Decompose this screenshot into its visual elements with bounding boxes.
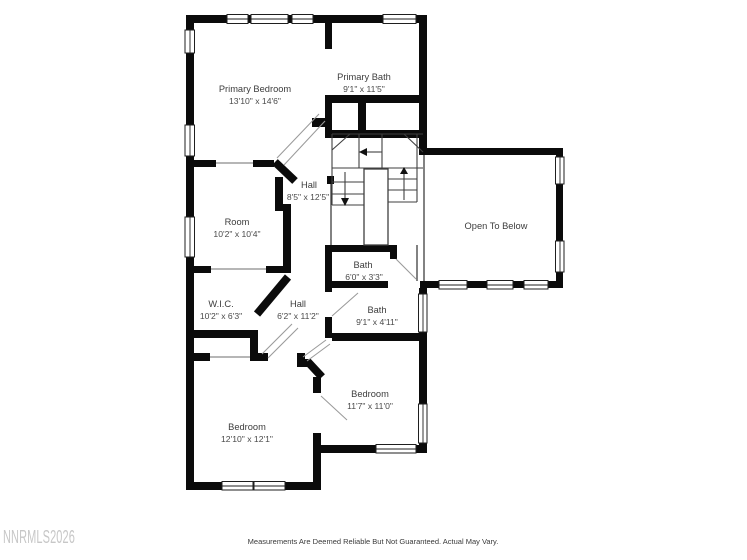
measurement-disclaimer: Measurements Are Deemed Reliable But Not…: [248, 537, 499, 546]
window: [487, 281, 513, 290]
room-label-bath-main: Bath: [367, 305, 386, 315]
room-dims-room: 10'2" x 10'4": [213, 229, 260, 239]
room-label-bedroom-left: Bedroom: [228, 422, 266, 432]
mls-watermark: NNRMLS2026: [3, 527, 75, 547]
floor-plan-page: Primary Bedroom 13'10" x 14'6" Primary B…: [0, 0, 747, 560]
stair-up-arrow-icon: [400, 167, 408, 200]
window: [185, 217, 195, 257]
window: [376, 445, 416, 454]
room-dims-bedroom-right: 11'7" x 11'0": [347, 401, 393, 411]
window: [185, 30, 195, 53]
room-dims-bath-small: 6'0" x 3'3": [345, 272, 383, 282]
room-dims-primary-bath: 9'1" x 11'5": [343, 84, 385, 94]
room-dims-wic: 10'2" x 6'3": [200, 311, 242, 321]
window: [419, 404, 428, 443]
room-dims-hall-upper: 8'5" x 12'5": [287, 192, 329, 202]
stairwell-void: [364, 169, 388, 245]
room-dims-hall-lower: 6'2" x 11'2": [277, 311, 319, 321]
window: [556, 241, 565, 272]
window: [292, 15, 313, 24]
stair-down-arrow-icon: [341, 172, 349, 206]
room-dims-bath-main: 9'1" x 4'11": [356, 317, 398, 327]
room-label-hall-upper: Hall: [301, 180, 317, 190]
window: [222, 482, 253, 491]
room-label-primary-bath: Primary Bath: [337, 72, 391, 82]
window: [524, 281, 548, 290]
window: [439, 281, 467, 290]
room-label-room: Room: [225, 217, 250, 227]
room-label-wic: W.I.C.: [208, 299, 233, 309]
window: [419, 294, 428, 332]
window: [251, 15, 288, 24]
room-label-bedroom-right: Bedroom: [351, 389, 389, 399]
room-dims-primary-bedroom: 13'10" x 14'6": [229, 96, 281, 106]
window: [185, 125, 195, 156]
room-label-primary-bedroom: Primary Bedroom: [219, 84, 292, 94]
window: [556, 157, 565, 184]
stair-turn-arrow-icon: [359, 148, 380, 156]
room-label-open-to-below: Open To Below: [465, 221, 528, 231]
door-openings: [210, 114, 416, 420]
room-dims-bedroom-left: 12'10" x 12'1": [221, 434, 273, 444]
window: [383, 15, 416, 24]
floor-plan-drawing: Primary Bedroom 13'10" x 14'6" Primary B…: [0, 0, 747, 560]
window: [254, 482, 285, 491]
window: [227, 15, 248, 24]
room-label-hall-lower: Hall: [290, 299, 306, 309]
staircase: [332, 134, 423, 245]
room-label-bath-small: Bath: [353, 260, 372, 270]
